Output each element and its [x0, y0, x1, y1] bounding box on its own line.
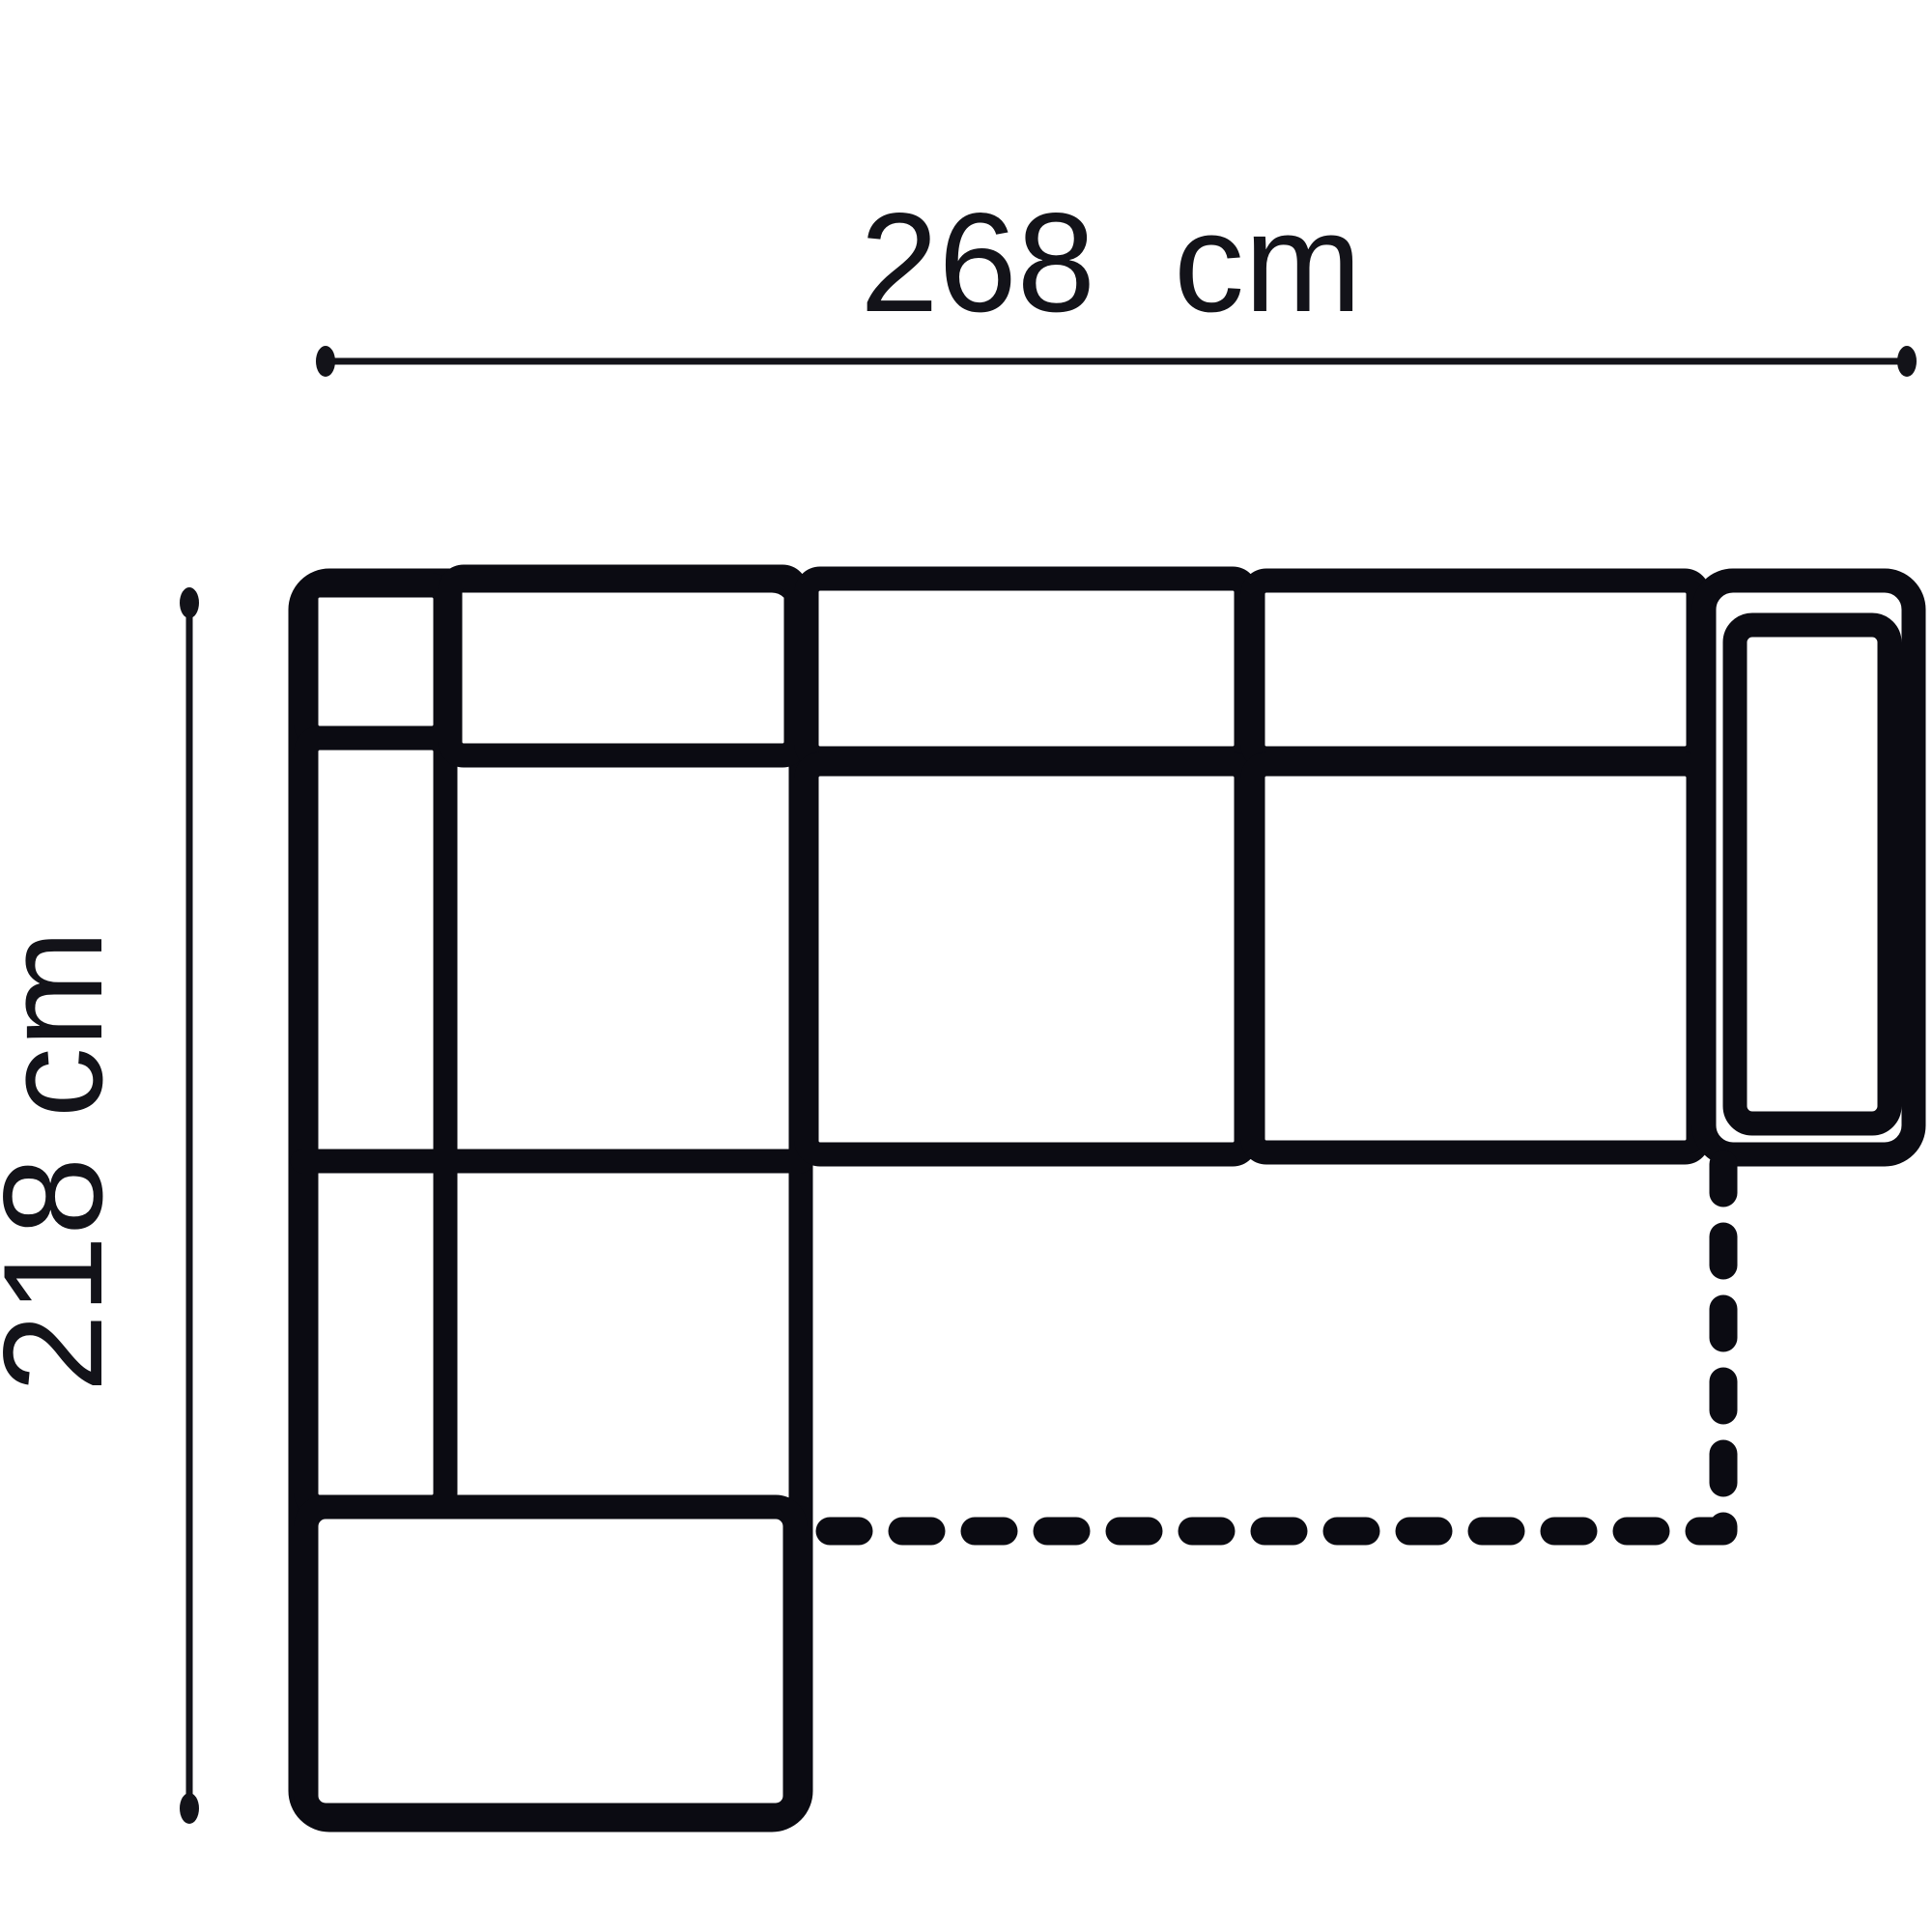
right-seat-cushion [1253, 764, 1698, 1152]
width-dimension-right-dot [1897, 346, 1917, 377]
right-armrest-pad [1735, 625, 1889, 1123]
width-dimension-label: 268 cm [860, 184, 1361, 341]
depth-dimension-top-dot [180, 587, 199, 618]
right-backrest-cushion [1253, 581, 1698, 758]
sofa-outline-group [300, 577, 1914, 1820]
chaise-foot-cushion [306, 1507, 795, 1815]
depth-dimension-group [180, 587, 199, 1824]
depth-dimension-label: 218 cm [0, 930, 131, 1393]
hidden-extension-dashed-outline [816, 1164, 1723, 1531]
chaise-backrest-cushion [450, 577, 796, 755]
middle-seat-cushion [807, 764, 1246, 1154]
middle-backrest-cushion [807, 579, 1246, 758]
sofa-dimension-diagram: 268 cm 218 cm [0, 0, 1932, 1932]
diagram-canvas: 268 cm 218 cm [0, 0, 1932, 1932]
depth-dimension-bottom-dot [180, 1793, 199, 1824]
left-armrest-back-segment [306, 585, 445, 738]
left-armrest-front-segment [306, 738, 445, 1507]
width-dimension-group [316, 346, 1917, 377]
width-dimension-left-dot [316, 346, 335, 377]
